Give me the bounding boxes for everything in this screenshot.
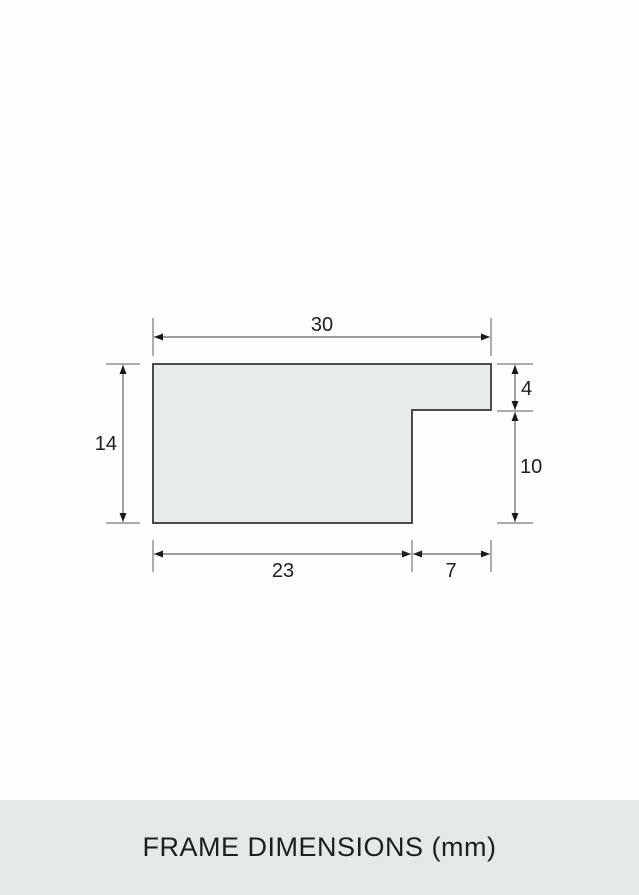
dimension-value-rabbet-width: 7 — [445, 560, 456, 582]
dimension-value-lip-thickness: 4 — [521, 378, 532, 400]
dimension-value-overall-height: 14 — [95, 433, 117, 455]
frame-profile-diagram: 30 14 4 10 — [0, 0, 639, 800]
frame-profile-shape — [153, 364, 491, 523]
dimension-base-width: 23 — [153, 540, 412, 582]
dimension-rabbet-width: 7 — [413, 540, 491, 582]
dimension-value-overall-width: 30 — [311, 314, 333, 336]
page-title: FRAME DIMENSIONS (mm) — [143, 832, 497, 863]
dimension-value-base-width: 23 — [272, 560, 294, 582]
dimension-overall-height: 14 — [95, 364, 140, 523]
caption-bar: FRAME DIMENSIONS (mm) — [0, 800, 639, 895]
dimension-overall-width: 30 — [153, 314, 491, 356]
dimension-value-rabbet-depth: 10 — [520, 456, 542, 478]
dimension-lip-thickness: 4 — [497, 364, 533, 411]
diagram-canvas: 30 14 4 10 — [0, 0, 639, 800]
frame-dimensions-page: 30 14 4 10 — [0, 0, 639, 895]
dimension-rabbet-depth: 10 — [497, 412, 542, 523]
